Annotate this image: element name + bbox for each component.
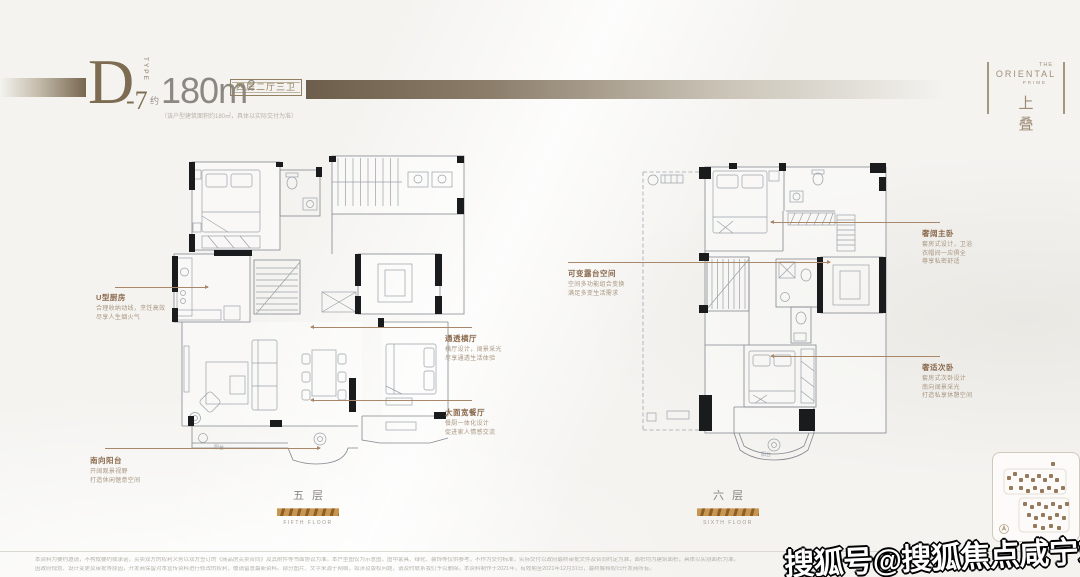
room-fills — [705, 167, 886, 433]
leader-master-bedroom — [771, 222, 940, 223]
callout-line: 空间多功能组合变换 — [568, 281, 658, 290]
bathroom-icon — [286, 173, 317, 210]
callout-line: 合理收纳动线，烹饪高效 — [96, 305, 186, 314]
gold-bar — [277, 508, 339, 516]
callout-line: 开阔观景视野 — [90, 468, 180, 477]
callout-title: U型厨房 — [96, 292, 186, 303]
unit-type-number: -7 — [126, 86, 148, 116]
callout-dining: 大面宽餐厅 餐厨一体化设计 促进家人情感交流 — [445, 407, 535, 437]
callout-terrace: 可变露台空间 空间多功能组合变换 满足多变生活需求 — [568, 268, 658, 298]
callout-line: 南向阔景采光 — [922, 384, 1002, 393]
leader-hall — [311, 327, 472, 328]
balcony-label: 阳台 — [761, 451, 771, 458]
floor-name-cn: 五层 — [256, 487, 360, 503]
callout-second-bedroom: 奢适次卧 套房式次卧设计 南向阔景采光 打造私享休憩空间 — [922, 362, 1002, 401]
brand-rule-left — [987, 62, 989, 114]
floor-plan-sixth: 阳台 — [633, 163, 893, 468]
callout-title: 通透横厅 — [445, 333, 535, 344]
callout-master-bedroom: 奢阔主卧 套房式设计，卫浴 衣帽间一应俱全 尊享私密舒适 — [922, 228, 1002, 267]
area-note: （该户型建筑面积约180㎡，具体以实际交付为准） — [161, 111, 297, 120]
callout-line: 打造休闲惬意空间 — [90, 477, 180, 486]
callout-kitchen: U型厨房 合理收纳动线，烹饪高效 尽享人生烟火气 — [96, 292, 186, 322]
leader-kitchen — [115, 287, 208, 288]
callout-hall: 通透横厅 横厅设计，阔景采光 尽享通透生活体验 — [445, 333, 535, 363]
decor-bar-left — [0, 78, 86, 97]
callout-line: 满足多变生活需求 — [568, 290, 658, 299]
floor-label-sixth: 六层 SIXTH FLOOR — [676, 487, 780, 526]
decor-bar-top — [306, 80, 958, 99]
callout-title: 奢阔主卧 — [922, 228, 1002, 239]
callout-line: 促进家人情感交流 — [445, 429, 535, 438]
floor-name-en: FIFTH FLOOR — [256, 520, 360, 526]
callout-line: 衣帽间一应俱全 — [922, 250, 1002, 259]
brand-rule-right — [1063, 62, 1065, 114]
callout-title: 奢适次卧 — [922, 362, 1002, 373]
site-outlines — [1004, 469, 1069, 532]
callout-line: 套房式次卧设计 — [922, 375, 1002, 384]
unit-type-word: TYPE — [142, 57, 149, 82]
room-fills — [174, 156, 464, 426]
floor-name-cn: 六层 — [676, 487, 780, 503]
balcony-items-icon — [768, 439, 780, 451]
layout-tag: 四房二厅三卫 — [230, 79, 302, 96]
floorplan-poster: D TYPE -7 约 180m2 （该户型建筑面积约180㎡，具体以实际交付为… — [0, 0, 1080, 577]
callout-line: 打造私享休憩空间 — [922, 392, 1002, 401]
brand-the: THE — [987, 62, 1065, 68]
callout-line: 尽享通透生活体验 — [445, 355, 535, 364]
callout-south-balcony: 南向阳台 开阔观景视野 打造休闲惬意空间 — [90, 455, 180, 485]
brand-logo: THE ORIENTAL PRIME 上 叠 — [987, 62, 1065, 114]
callout-line: 餐厨一体化设计 — [445, 420, 535, 429]
callout-title: 南向阳台 — [90, 455, 180, 466]
callout-line: 横厅设计，阔景采光 — [445, 346, 535, 355]
brand-prime: PRIME — [987, 80, 1065, 85]
brand-oriental: ORIENTAL — [987, 69, 1065, 79]
leader-dining — [311, 400, 472, 401]
leader-terrace — [568, 262, 830, 263]
callout-title: 可变露台空间 — [568, 268, 658, 279]
terrace-outline — [643, 172, 705, 430]
floor-name-en: SIXTH FLOOR — [676, 520, 780, 526]
callout-line: 尽享人生烟火气 — [96, 314, 186, 323]
floor-label-fifth: 五层 FIFTH FLOOR — [256, 487, 360, 526]
leader-south-balcony — [105, 448, 320, 449]
area-approx-label: 约 — [150, 94, 159, 107]
callout-line: 尊享私密舒适 — [922, 258, 1002, 267]
leader-second-bedroom — [771, 356, 940, 357]
inner-stairs-icon — [256, 262, 300, 314]
callout-title: 大面宽餐厅 — [445, 407, 535, 418]
brand-chinese-name: 上 叠 — [987, 92, 1065, 134]
terrace-furniture-icon — [647, 175, 689, 421]
callout-line: 套房式设计，卫浴 — [922, 241, 1002, 250]
building-dots — [1007, 462, 1069, 530]
gold-bar — [697, 508, 759, 516]
sohu-watermark: 搜狐号@搜狐焦点咸宁站 — [783, 526, 1080, 577]
floor-plan-fifth: 阳台 — [172, 150, 472, 465]
